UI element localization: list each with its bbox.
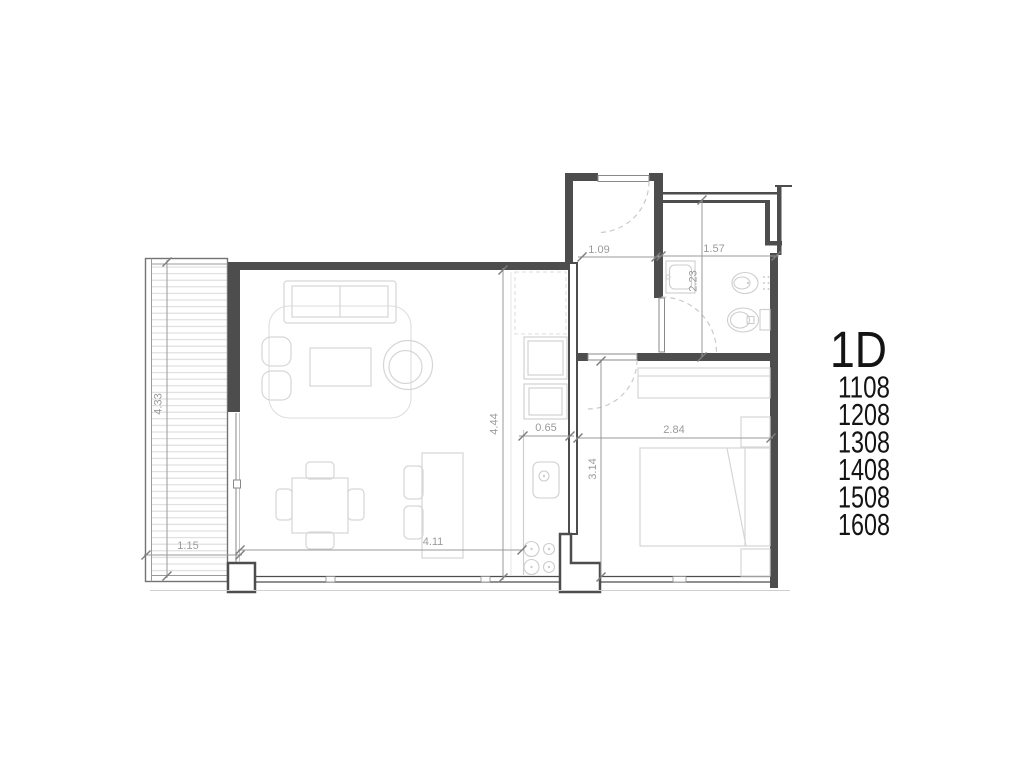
dim-kitchen-counter: 0.65 [519, 422, 575, 441]
terrace-sliding-door [234, 413, 241, 562]
dim-label-bathroom-depth: 2.23 [688, 270, 700, 291]
terrace-decking [152, 265, 227, 575]
bedroom-furniture [638, 368, 770, 576]
wardrobe [638, 368, 770, 398]
fridge [524, 337, 567, 379]
entry-left-wall [565, 173, 573, 270]
unit-label: 1D 1108 1208 1308 1408 1508 1608 [830, 321, 890, 542]
dim-label-kitchen-counter: 0.65 [535, 422, 556, 434]
bathroom-right-wall-upper [765, 200, 770, 243]
dim-living-width: 4.11 [236, 536, 527, 555]
dim-label-living-width: 4.11 [423, 536, 444, 548]
bathroom-door-leaf [659, 298, 665, 352]
bathroom-fixtures [666, 261, 770, 332]
dim-entry-width: 1.09 [578, 244, 661, 262]
dim-bathroom-depth: 2.23 [688, 196, 707, 362]
entry-door-swing [598, 182, 649, 233]
armchair [262, 337, 291, 366]
entry-bathroom-wall [654, 173, 663, 298]
sliding-door-handle [234, 480, 241, 488]
window-mullion [673, 577, 686, 583]
oven [524, 384, 567, 419]
window-mullion [326, 577, 335, 583]
bathroom-top-wall [663, 200, 770, 203]
window-mullion [481, 577, 490, 583]
kitchen-column [560, 534, 600, 592]
living-top-wall [228, 262, 572, 270]
bedroom-door-leaf [588, 354, 637, 360]
dim-label-terrace-width: 1.15 [177, 540, 198, 552]
bathroom-door [659, 297, 717, 352]
unit-number: 1608 [838, 507, 890, 542]
terrace-living-wall [228, 262, 240, 412]
round-chair [384, 341, 433, 390]
bed [640, 448, 770, 546]
walls [228, 173, 792, 592]
bedroom-door-stub [578, 353, 588, 361]
sofa [284, 281, 396, 323]
right-wall [770, 253, 778, 588]
dim-living-depth: 4.44 [489, 266, 508, 583]
party-wall-stub [775, 185, 792, 187]
nightstand [741, 417, 770, 447]
armchair [262, 371, 291, 400]
bidet [728, 308, 771, 332]
sink [533, 462, 559, 498]
floorplan-page: 1.09 1.57 2.23 0.65 2.84 [0, 0, 1024, 768]
dim-label-living-depth: 4.44 [489, 413, 501, 434]
toilet [732, 273, 770, 294]
entry-top-wall-left [565, 173, 598, 181]
bedroom-door-swing [588, 360, 637, 409]
corner-column [228, 563, 255, 592]
dim-bedroom-width: 2.84 [574, 424, 776, 443]
dining-table [276, 462, 364, 549]
cooktop [524, 542, 555, 575]
terrace [146, 259, 228, 582]
dim-bedroom-depth: 3.14 [587, 357, 606, 582]
bedroom-top-wall [637, 353, 770, 361]
bathroom-door-swing [662, 297, 717, 352]
coffee-table [310, 348, 371, 386]
dim-label-terrace-length: 4.33 [153, 393, 165, 414]
bathroom-top-outer-line [663, 192, 778, 195]
kitchen-bedroom-wall [569, 263, 577, 534]
floorplan-drawing: 1.09 1.57 2.23 0.65 2.84 [0, 0, 1024, 768]
dim-label-bedroom-depth: 3.14 [587, 458, 599, 479]
upper-cabinets [515, 272, 566, 334]
nightstand [741, 549, 770, 576]
dim-label-entry-width: 1.09 [588, 244, 609, 256]
dim-bathroom-width: 1.57 [657, 243, 781, 261]
dim-label-bathroom-width: 1.57 [703, 243, 724, 255]
living-room-furniture [262, 281, 463, 558]
dim-label-bedroom-width: 2.84 [663, 424, 684, 436]
entry-door [598, 176, 649, 233]
outer-right-wall-upper [777, 185, 782, 255]
bedroom-door [588, 354, 637, 409]
entry-door-leaf [598, 176, 649, 182]
